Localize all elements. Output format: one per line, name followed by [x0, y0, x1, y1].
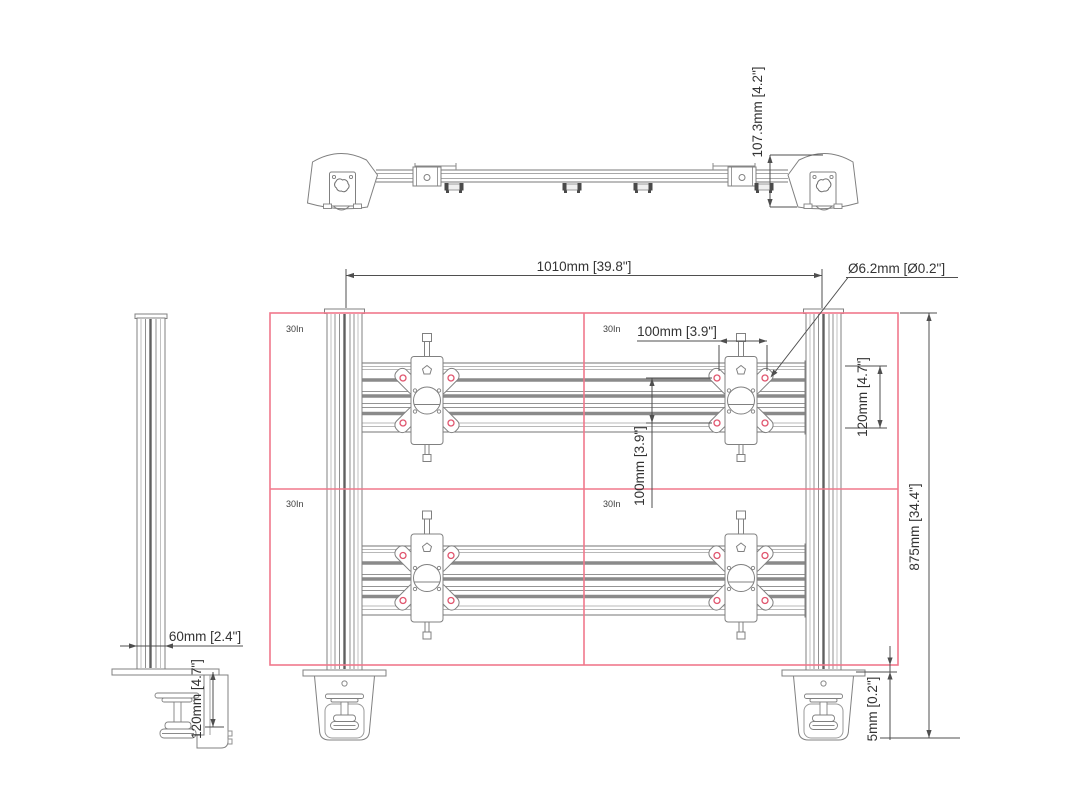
dim-top-depth-label: 107.3mm [4.2"] [750, 66, 765, 157]
top-view: 107.3mm [4.2"] [308, 66, 859, 210]
dimension-desk-gap: 5mm [0.2"] [856, 646, 897, 741]
monitor-label-top-right: 30In [603, 324, 621, 334]
clip-2 [563, 183, 582, 193]
dimension-overall-width: 1010mm [39.8"] [346, 259, 822, 308]
dimension-overall-height: 875mm [34.4"] [880, 313, 960, 738]
technical-drawing-page: 107.3mm [4.2"] [0, 0, 1080, 810]
dim-desk-gap-label: 5mm [0.2"] [865, 677, 880, 742]
clip-3 [634, 183, 653, 193]
monitor-label-bottom-left: 30In [286, 499, 304, 509]
monitor-mount-drawing: 107.3mm [4.2"] [0, 0, 1080, 810]
dim-pole-width-label: 60mm [2.4"] [169, 629, 241, 644]
dim-clamp-height-label: 120mm [4.7"] [189, 659, 204, 739]
dimension-rail-height: 120mm [4.7"] [845, 357, 887, 437]
side-view: 60mm [2.4"] 120mm [4.7"] [112, 314, 243, 748]
front-view: 30In 30In 30In 30In 1010mm [39.8"] Ø6.2m… [270, 259, 960, 741]
clamp-top-view-left [308, 153, 378, 210]
desk-clamp-left [303, 670, 386, 740]
slider-left [413, 167, 441, 186]
dim-vesa-height-label: 100mm [3.9"] [632, 426, 647, 506]
dim-overall-width-label: 1010mm [39.8"] [537, 259, 632, 274]
dim-hole-diameter-label: Ø6.2mm [Ø0.2"] [848, 261, 945, 276]
clamp-top-view-right [788, 153, 858, 210]
side-view-pole [135, 314, 167, 669]
side-view-clamp [112, 669, 232, 748]
clip-1 [445, 183, 464, 193]
dim-overall-height-label: 875mm [34.4"] [907, 483, 922, 570]
monitor-label-bottom-right: 30In [603, 499, 621, 509]
dim-vesa-width-label: 100mm [3.9"] [637, 324, 717, 339]
desk-clamp-right [782, 670, 865, 740]
clip-4 [755, 183, 774, 193]
monitor-label-top-left: 30In [286, 324, 304, 334]
slider-right [728, 167, 756, 186]
dim-rail-height-label: 120mm [4.7"] [855, 357, 870, 437]
